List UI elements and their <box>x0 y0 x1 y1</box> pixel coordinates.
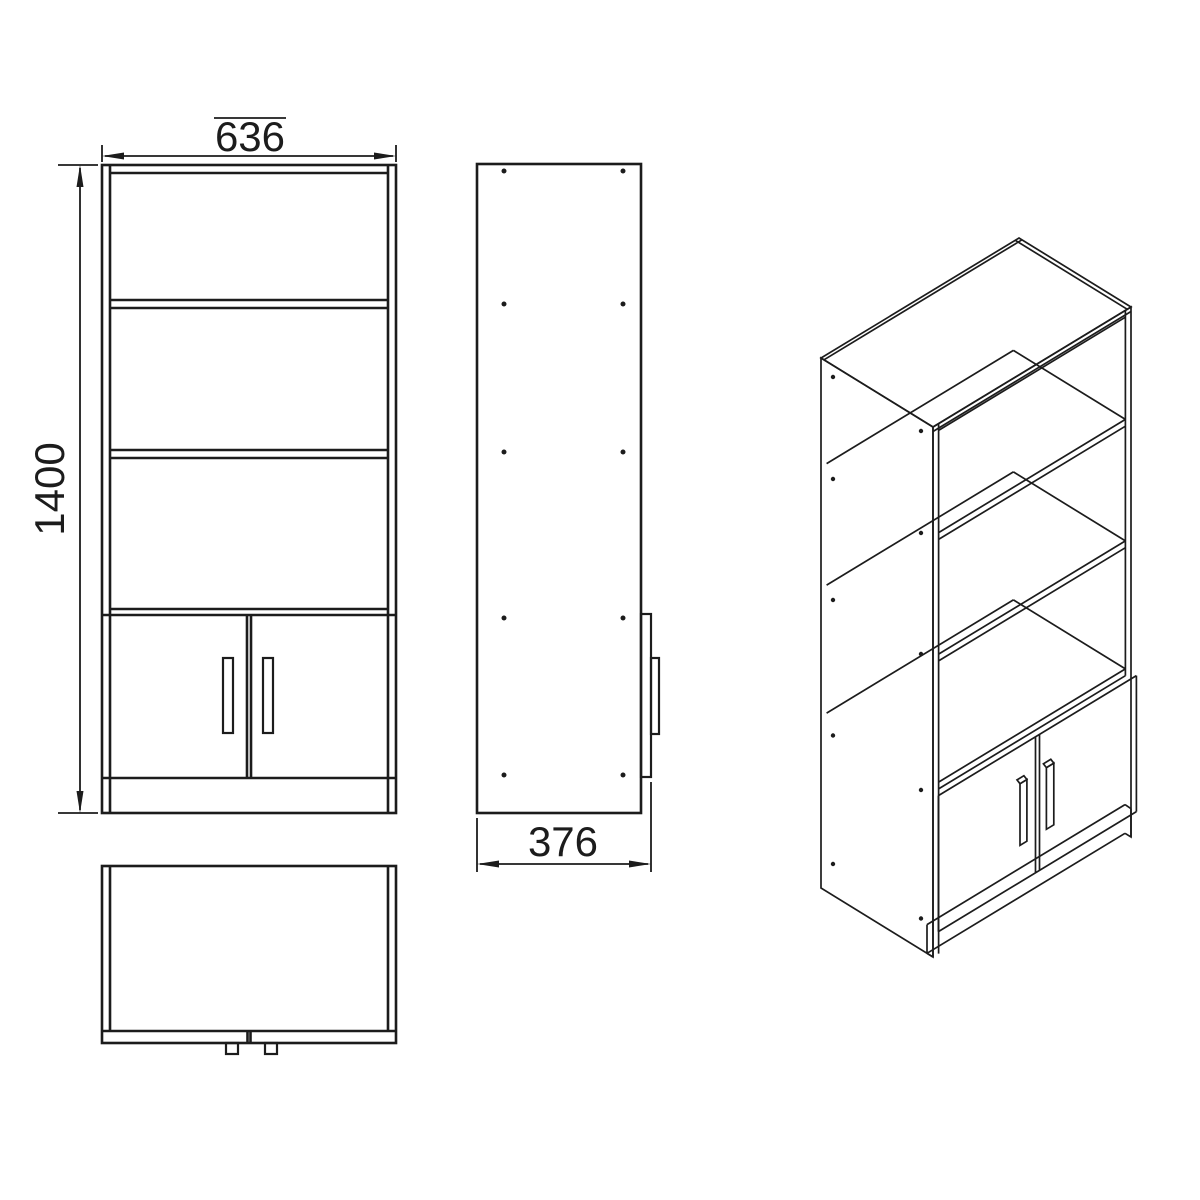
depth-arrow-right <box>629 861 651 868</box>
width-arrow-left <box>102 153 124 160</box>
front-panels-and-shelves <box>102 165 396 813</box>
iso-shelf-1 <box>827 350 1126 539</box>
height-dimension-label: 1400 <box>26 442 73 535</box>
side-door-edge <box>641 614 651 777</box>
iso-left-door-handle <box>1020 780 1027 846</box>
iso-doors <box>938 676 1136 932</box>
iso-bottom-shelf <box>827 600 1126 782</box>
front-view <box>102 165 396 813</box>
height-arrow-bottom <box>77 791 84 813</box>
front-right-door-handle <box>263 658 273 733</box>
iso-right-door-handle <box>1046 763 1053 829</box>
technical-drawing: 636 1400 376 <box>0 0 1200 1200</box>
top-view-outline <box>102 866 396 1043</box>
front-carcass-outline <box>102 165 396 813</box>
depth-dimension-label: 376 <box>528 818 598 865</box>
depth-arrow-left <box>477 861 499 868</box>
width-arrow-right <box>374 153 396 160</box>
iso-shelf-2 <box>827 472 1126 661</box>
side-view <box>477 164 659 813</box>
top-view-left-handle <box>226 1043 238 1054</box>
width-dimension-label: 636 <box>215 113 285 160</box>
top-view-right-handle <box>265 1043 277 1054</box>
iso-left-face <box>821 358 933 957</box>
side-panel-outline <box>477 164 641 813</box>
iso-dowel-holes <box>831 375 923 921</box>
side-door-handle <box>651 658 659 734</box>
front-left-door-handle <box>223 658 233 733</box>
top-view <box>102 866 396 1054</box>
height-arrow-top <box>77 165 84 187</box>
isometric-view <box>821 238 1136 957</box>
technical-drawing-page: 636 1400 376 <box>0 0 1200 1200</box>
side-dowel-holes <box>502 169 626 778</box>
top-view-panels <box>102 866 396 1043</box>
iso-plinth <box>927 805 1131 957</box>
